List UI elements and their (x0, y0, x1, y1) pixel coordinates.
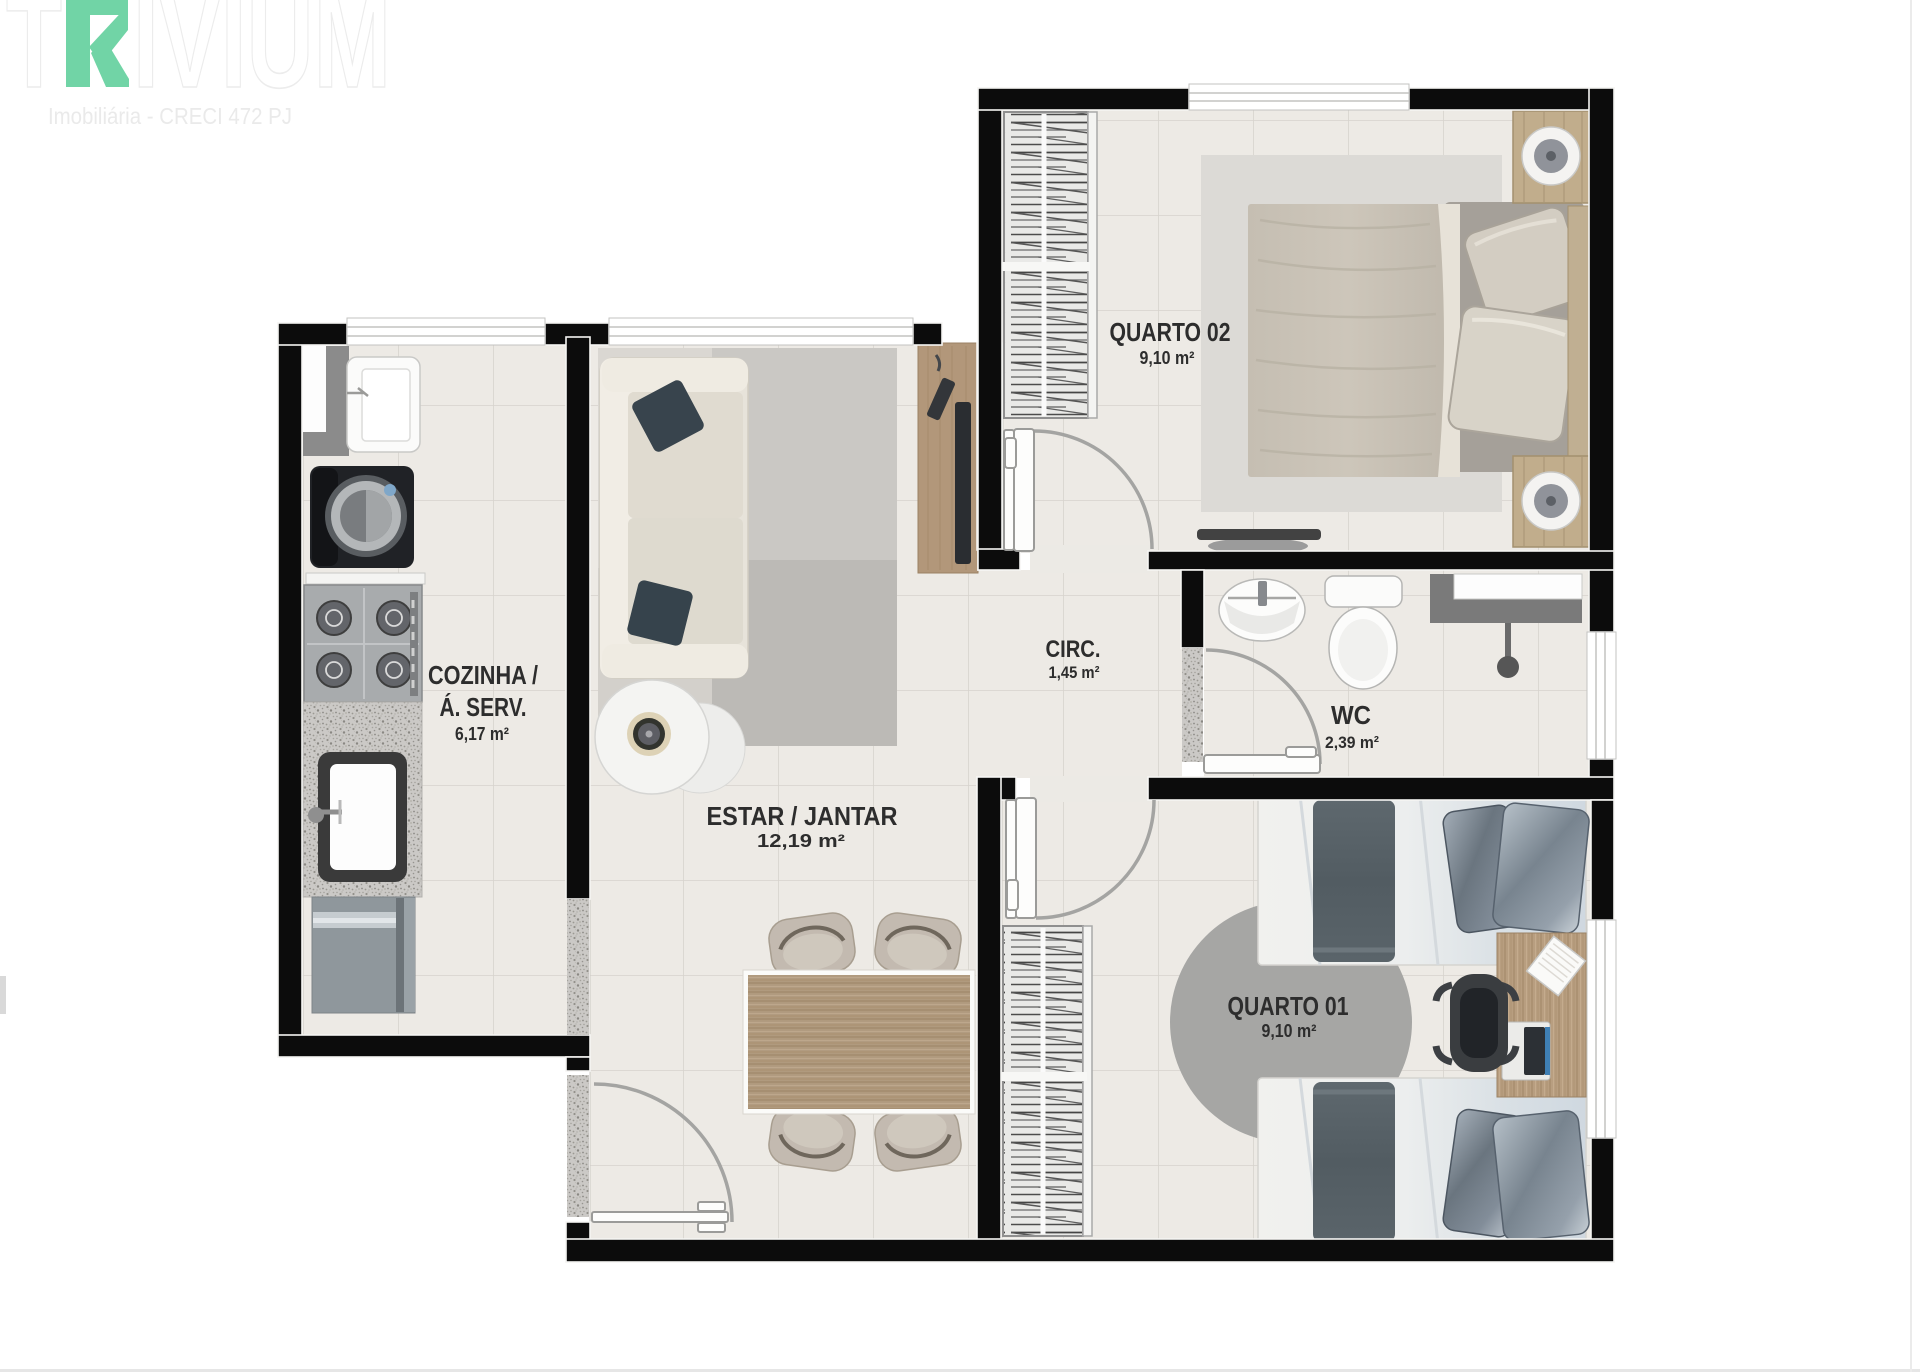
svg-text:QUARTO 02: QUARTO 02 (1110, 317, 1231, 347)
svg-text:IVIUM: IVIUM (133, 0, 391, 115)
svg-text:QUARTO 01: QUARTO 01 (1228, 991, 1349, 1021)
svg-text:9,10 m²: 9,10 m² (1262, 1021, 1317, 1041)
svg-text:CIRC.: CIRC. (1046, 636, 1101, 663)
svg-text:Á. SERV.: Á. SERV. (440, 692, 527, 722)
svg-text:T: T (6, 0, 62, 115)
svg-text:WC: WC (1331, 700, 1371, 730)
svg-text:Imobiliária - CRECI 472 PJ: Imobiliária - CRECI 472 PJ (48, 103, 292, 129)
svg-text:ESTAR / JANTAR: ESTAR / JANTAR (707, 801, 898, 831)
svg-text:9,10 m²: 9,10 m² (1140, 348, 1195, 368)
svg-text:2,39 m²: 2,39 m² (1325, 733, 1379, 752)
svg-text:COZINHA /: COZINHA / (428, 660, 538, 690)
svg-text:1,45 m²: 1,45 m² (1049, 663, 1100, 682)
svg-text:12,19 m²: 12,19 m² (757, 831, 845, 851)
svg-text:6,17 m²: 6,17 m² (455, 724, 509, 744)
